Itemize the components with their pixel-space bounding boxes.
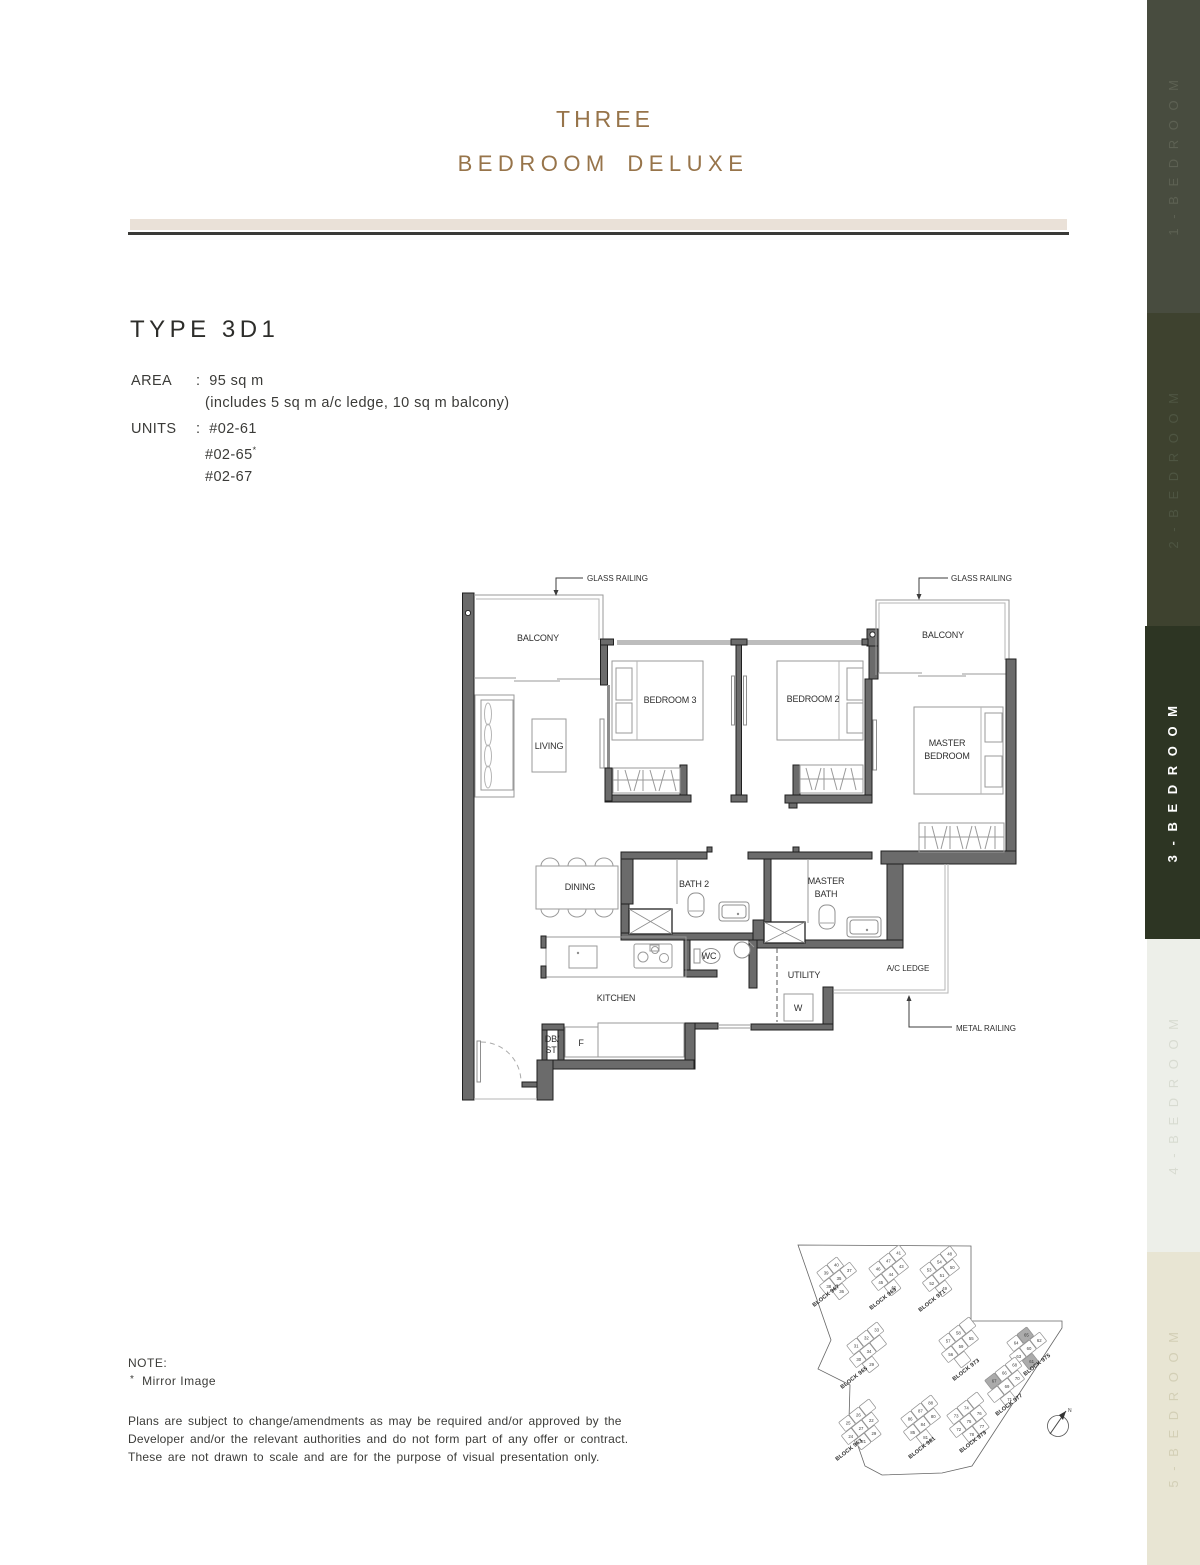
svg-text:74: 74: [964, 1406, 969, 1411]
svg-text:F: F: [578, 1038, 584, 1048]
svg-text:31: 31: [854, 1344, 859, 1349]
svg-text:BATH 2: BATH 2: [679, 879, 709, 889]
svg-text:40: 40: [834, 1263, 839, 1268]
svg-text:26: 26: [856, 1413, 861, 1418]
svg-text:73: 73: [954, 1414, 959, 1419]
svg-text:WC: WC: [702, 951, 717, 961]
svg-text:62: 62: [1037, 1338, 1042, 1343]
svg-text:50: 50: [950, 1265, 955, 1270]
svg-text:25: 25: [846, 1421, 851, 1426]
svg-text:MASTER: MASTER: [808, 876, 845, 886]
svg-text:KITCHEN: KITCHEN: [597, 993, 635, 1003]
svg-text:GLASS RAILING: GLASS RAILING: [951, 574, 1012, 583]
svg-text:UTILITY: UTILITY: [788, 970, 821, 980]
svg-text:BALCONY: BALCONY: [922, 630, 964, 640]
svg-text:55: 55: [969, 1336, 974, 1341]
svg-text:51: 51: [940, 1273, 945, 1278]
svg-text:GLASS RAILING: GLASS RAILING: [587, 574, 648, 583]
svg-text:37: 37: [847, 1268, 852, 1273]
svg-text:56: 56: [948, 1352, 953, 1357]
svg-text:76: 76: [977, 1411, 982, 1416]
svg-text:METAL RAILING: METAL RAILING: [956, 1024, 1016, 1033]
svg-text:87: 87: [918, 1409, 923, 1414]
svg-text:84: 84: [921, 1422, 926, 1427]
svg-text:53: 53: [927, 1268, 932, 1273]
svg-text:48: 48: [947, 1252, 952, 1257]
svg-text:34: 34: [867, 1349, 872, 1354]
svg-text:W: W: [794, 1003, 803, 1013]
svg-text:A/C LEDGE: A/C LEDGE: [887, 964, 930, 973]
svg-text:22: 22: [869, 1418, 874, 1423]
svg-text:41: 41: [896, 1251, 901, 1256]
svg-text:35: 35: [837, 1276, 842, 1281]
svg-text:69: 69: [1005, 1384, 1010, 1389]
svg-text:43: 43: [899, 1264, 904, 1269]
svg-text:78: 78: [969, 1432, 974, 1437]
svg-text:58: 58: [956, 1331, 961, 1336]
svg-text:88: 88: [928, 1401, 933, 1406]
svg-text:80: 80: [931, 1414, 936, 1419]
svg-text:85: 85: [910, 1430, 915, 1435]
svg-text:52: 52: [929, 1281, 934, 1286]
svg-text:36: 36: [839, 1289, 844, 1294]
svg-text:44: 44: [889, 1272, 894, 1277]
svg-text:DINING: DINING: [565, 882, 596, 892]
svg-text:60: 60: [1027, 1346, 1032, 1351]
svg-text:59: 59: [959, 1344, 964, 1349]
svg-text:29: 29: [872, 1431, 877, 1436]
svg-text:66: 66: [1002, 1371, 1007, 1376]
svg-text:68: 68: [1012, 1363, 1017, 1368]
svg-text:75: 75: [967, 1419, 972, 1424]
svg-text:63: 63: [1016, 1354, 1021, 1359]
svg-text:54: 54: [937, 1260, 942, 1265]
svg-text:65: 65: [1024, 1333, 1029, 1338]
svg-text:77: 77: [980, 1424, 985, 1429]
svg-text:29: 29: [869, 1362, 874, 1367]
svg-text:MASTER: MASTER: [929, 738, 966, 748]
svg-text:39: 39: [824, 1271, 829, 1276]
svg-text:33: 33: [874, 1328, 879, 1333]
svg-text:70: 70: [1015, 1376, 1020, 1381]
svg-text:24: 24: [848, 1434, 853, 1439]
svg-text:BALCONY: BALCONY: [517, 633, 559, 643]
svg-text:86: 86: [908, 1417, 913, 1422]
svg-text:32: 32: [864, 1336, 869, 1341]
svg-text:LIVING: LIVING: [535, 741, 564, 751]
svg-text:BATH: BATH: [815, 889, 838, 899]
svg-text:N: N: [1068, 1408, 1072, 1414]
svg-text:47: 47: [886, 1259, 891, 1264]
svg-text:67: 67: [992, 1379, 997, 1384]
svg-text:BEDROOM: BEDROOM: [924, 751, 969, 761]
svg-text:27: 27: [859, 1426, 864, 1431]
svg-text:BEDROOM 2: BEDROOM 2: [787, 694, 840, 704]
svg-text:30: 30: [856, 1357, 861, 1362]
svg-text:46: 46: [876, 1267, 881, 1272]
svg-text:64: 64: [1014, 1341, 1019, 1346]
svg-text:BEDROOM 3: BEDROOM 3: [644, 695, 697, 705]
svg-text:ST: ST: [545, 1045, 557, 1055]
svg-text:72: 72: [956, 1427, 961, 1432]
svg-text:DB/: DB/: [545, 1034, 560, 1044]
svg-text:45: 45: [878, 1280, 883, 1285]
svg-text:57: 57: [946, 1339, 951, 1344]
